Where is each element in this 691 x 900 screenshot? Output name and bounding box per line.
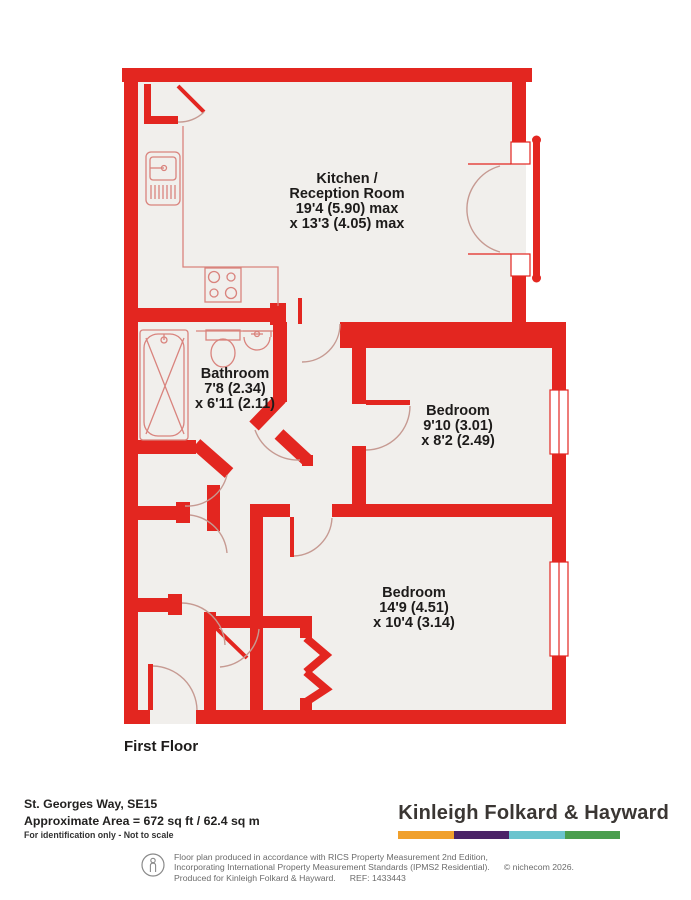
- wall-left: [124, 68, 138, 724]
- property-address: St. Georges Way, SE15: [24, 796, 260, 813]
- bedroom1-dim2: x 8'2 (2.49): [421, 433, 495, 449]
- cupboard2-door-post: [176, 502, 190, 523]
- bathroom-dim2: x 6'11 (2.11): [195, 396, 275, 412]
- copyright-text: © nichecom 2026.: [504, 862, 574, 872]
- brand-block: Kinleigh Folkard & Hayward: [398, 802, 669, 839]
- wall-bathroom-right: [273, 322, 287, 402]
- disclaimer-line-2-text: Incorporating International Property Mea…: [174, 862, 490, 872]
- bedroom2-door-leaf: [290, 517, 294, 557]
- wall-kitchen-bathroom: [138, 308, 273, 322]
- entrance-door-leaf: [148, 664, 153, 710]
- wall-top: [122, 68, 532, 82]
- disclaimer-line-2: Incorporating International Property Mea…: [174, 862, 574, 872]
- wall-entry-inner: [204, 612, 216, 710]
- cupboard3-door-post: [168, 594, 182, 615]
- bedroom2-dim1: 14'9 (4.51): [379, 600, 449, 616]
- brand-bar-teal: [509, 831, 565, 839]
- bedroom2-name: Bedroom: [382, 585, 446, 601]
- label-bedroom2: Bedroom 14'9 (4.51) x 10'4 (3.14): [373, 585, 455, 631]
- bathroom-dim1: 7'8 (2.34): [204, 381, 266, 397]
- wall-hall-right: [250, 517, 263, 713]
- label-bathroom: Bathroom 7'8 (2.34) x 6'11 (2.11): [195, 366, 275, 412]
- property-area: Approximate Area = 672 sq ft / 62.4 sq m: [24, 813, 260, 830]
- reference-number: REF: 1433443: [350, 873, 406, 883]
- wall-cupboard1-top: [138, 440, 196, 454]
- label-bedroom1: Bedroom 9'10 (3.01) x 8'2 (2.49): [421, 403, 495, 449]
- kitchen-name: Kitchen /: [316, 171, 377, 187]
- wall-cupboard3-top: [138, 598, 170, 612]
- wall-bedroom1-left-lower: [352, 446, 366, 508]
- balcony-rail-cap-bottom: [532, 274, 541, 283]
- balcony-rail-cap-top: [532, 136, 541, 145]
- page: { "colors": { "wall": "#e32620", "floor"…: [0, 0, 691, 900]
- brand-bar-green: [565, 831, 621, 839]
- wall-closet-right-upper: [300, 622, 312, 638]
- identification-note: For identification only - Not to scale: [24, 829, 260, 842]
- bathroom-name: Bathroom: [201, 366, 269, 382]
- floor-title: First Floor: [124, 738, 198, 755]
- footer: St. Georges Way, SE15 Approximate Area =…: [0, 780, 691, 900]
- wall-kitchen-bedroom1: [340, 322, 566, 348]
- brand-bar-orange: [398, 831, 454, 839]
- person-icon: [140, 852, 166, 878]
- brand-color-bar: [398, 831, 620, 839]
- wall-bedroom2-top-left: [250, 504, 290, 517]
- floor-plan: Kitchen / Reception Room 19'4 (5.90) max…: [0, 0, 691, 770]
- wall-bedroom2-top: [332, 504, 566, 517]
- kitchen-door-post: [270, 303, 286, 325]
- floor-plan-svg: Kitchen / Reception Room 19'4 (5.90) max…: [0, 0, 691, 770]
- brand-logo-text: Kinleigh Folkard & Hayward: [398, 802, 669, 825]
- wall-entry-stub-h: [144, 116, 178, 124]
- wall-bedroom1-left-upper: [352, 348, 366, 404]
- disclaimer: Floor plan produced in accordance with R…: [140, 852, 574, 883]
- wall-kitchen-right-upper: [512, 68, 526, 144]
- balcony-window-bottom: [511, 254, 530, 276]
- bedroom2-dim2: x 10'4 (3.14): [373, 615, 455, 631]
- kitchen-dim2: x 13'3 (4.05) max: [290, 216, 405, 232]
- bedroom1-dim1: 9'10 (3.01): [423, 418, 493, 434]
- wall-cupboard2-top: [138, 506, 178, 520]
- wall-bottom-left: [124, 710, 150, 724]
- balcony-window-top: [511, 142, 530, 164]
- produced-for-text: Produced for Kinleigh Folkard & Hayward.: [174, 873, 336, 883]
- brand-bar-purple: [454, 831, 510, 839]
- balcony-rail: [533, 140, 540, 278]
- disclaimer-text: Floor plan produced in accordance with R…: [174, 852, 574, 883]
- bedroom1-door-leaf: [366, 400, 410, 405]
- wall-closet-top: [216, 616, 312, 628]
- kitchen-name2: Reception Room: [289, 186, 404, 202]
- disclaimer-line-1: Floor plan produced in accordance with R…: [174, 852, 574, 862]
- property-info: St. Georges Way, SE15 Approximate Area =…: [24, 796, 260, 842]
- kitchen-dim1: 19'4 (5.90) max: [296, 201, 399, 217]
- kitchen-door-leaf: [298, 298, 302, 324]
- bedroom1-name: Bedroom: [426, 403, 490, 419]
- disclaimer-line-3: Produced for Kinleigh Folkard & Hayward.…: [174, 873, 574, 883]
